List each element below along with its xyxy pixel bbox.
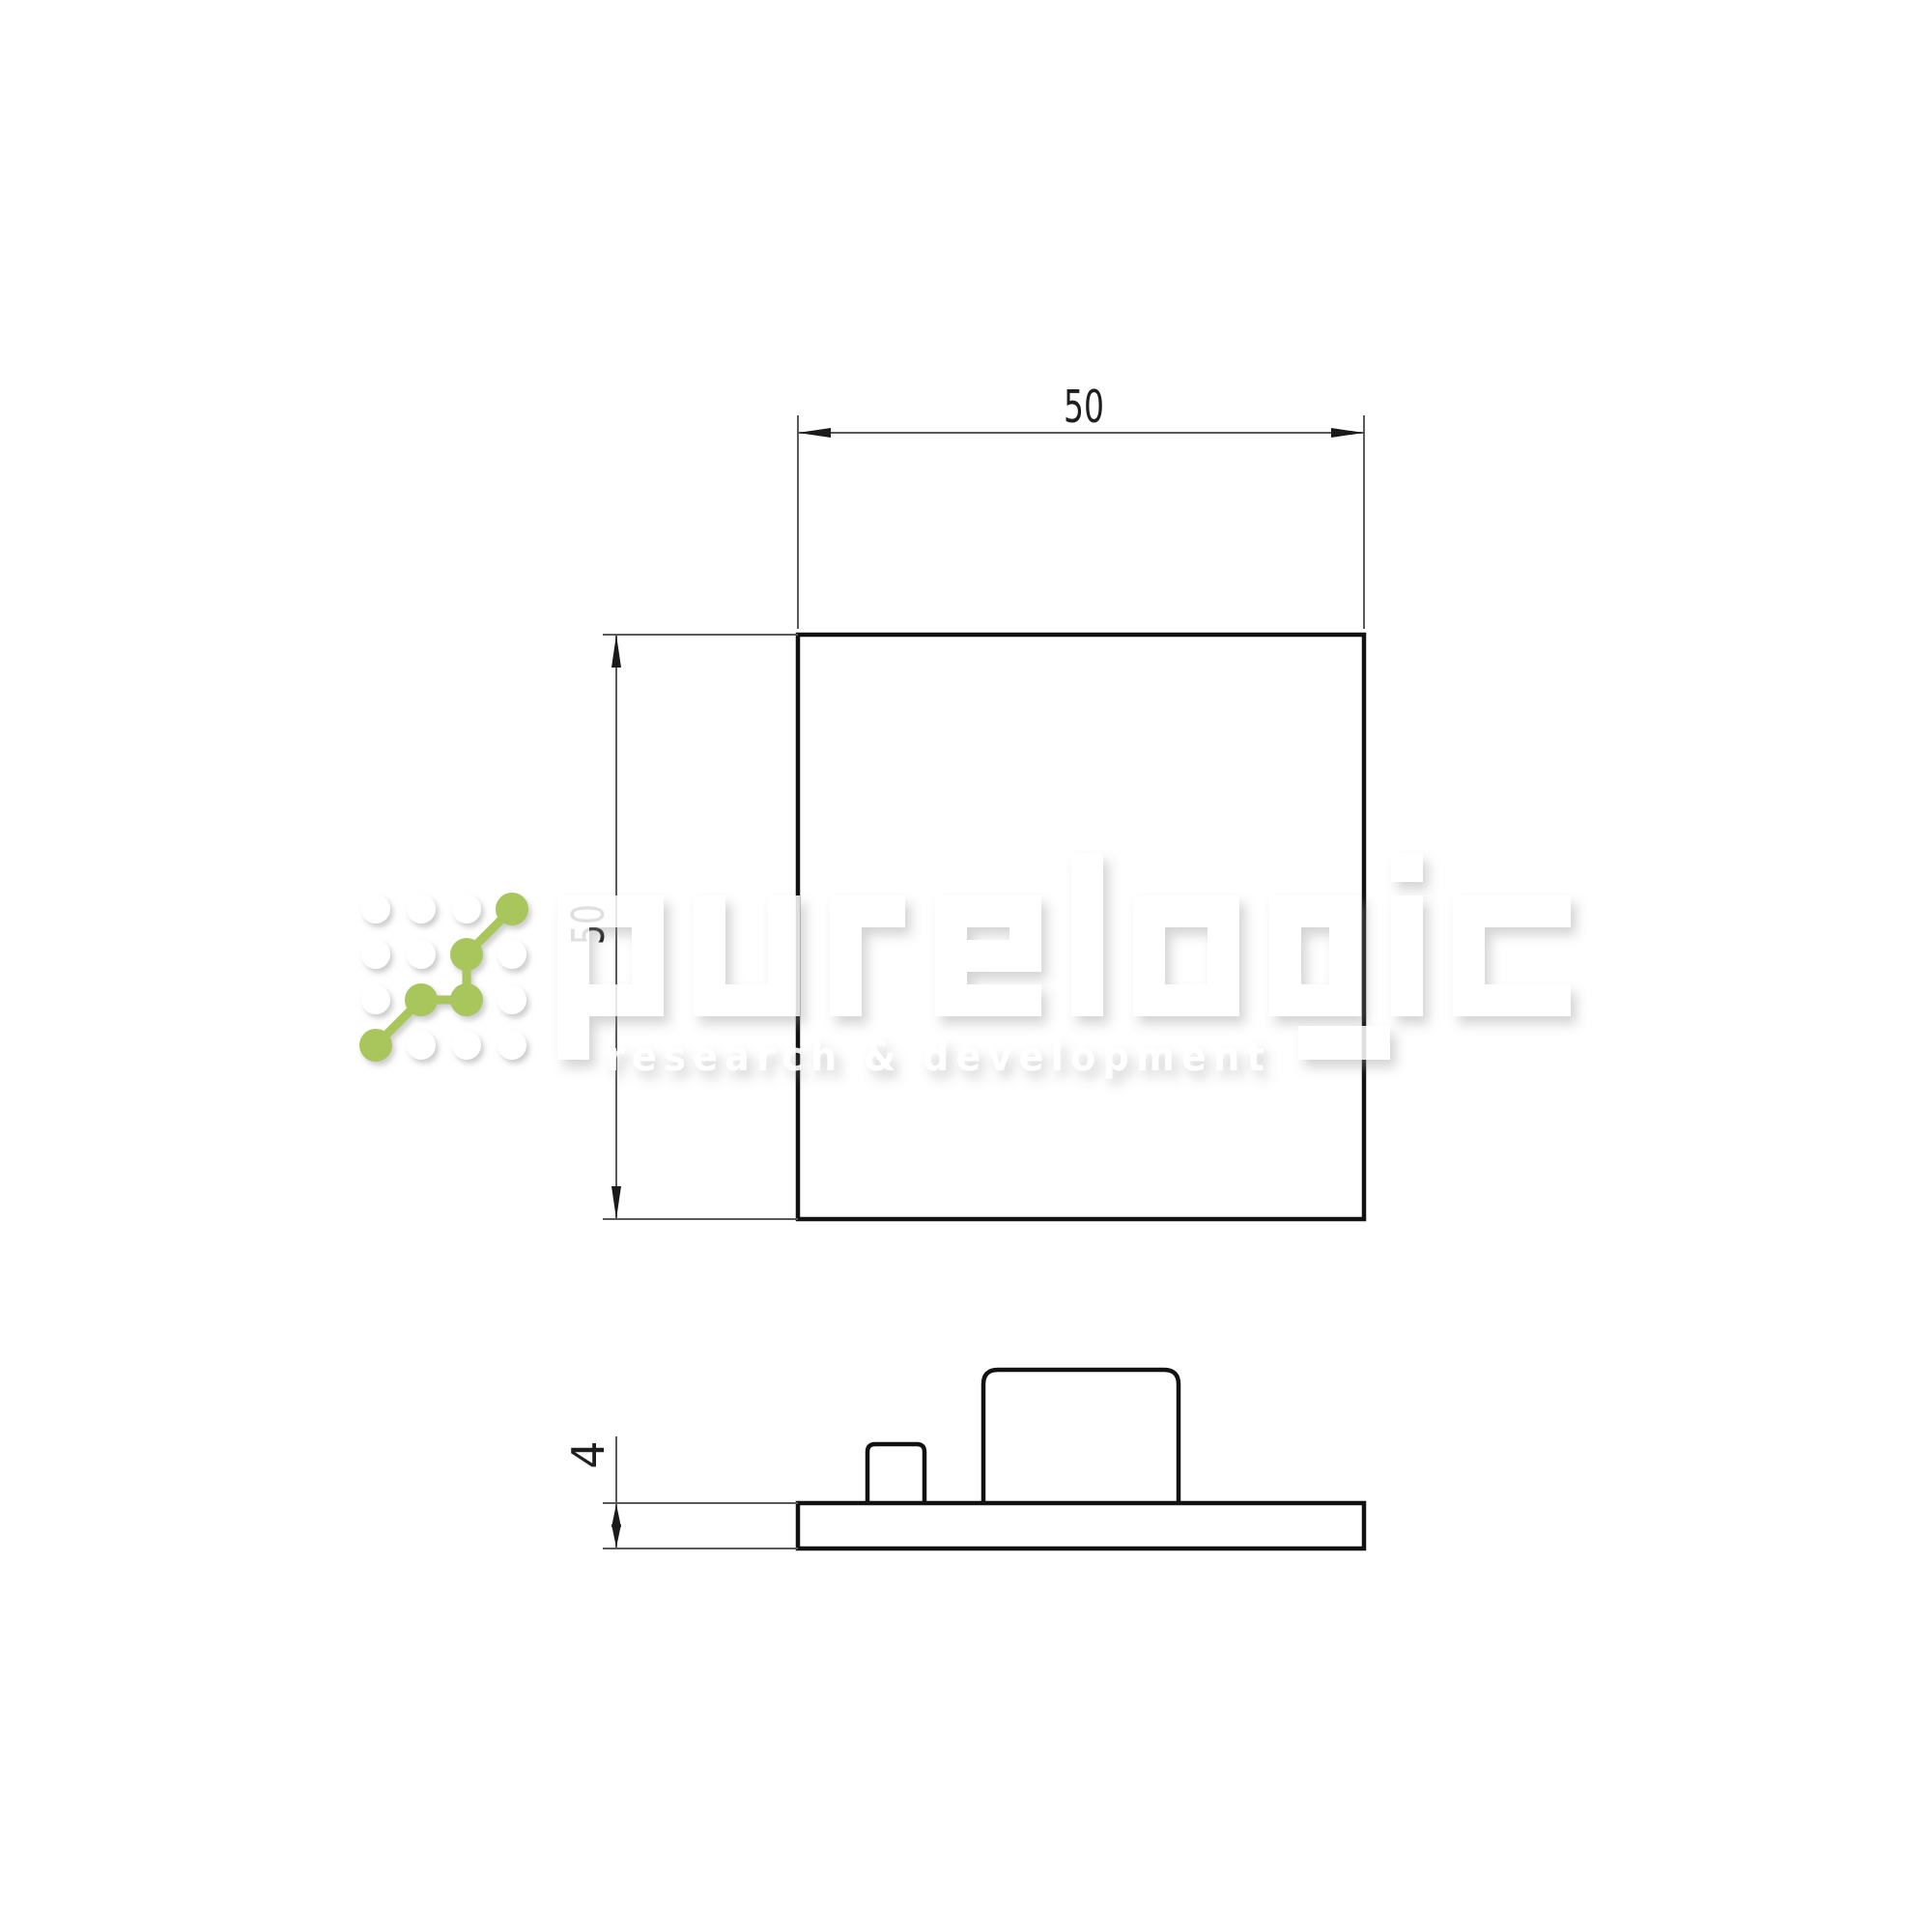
logo-dot-green <box>450 983 483 1016</box>
arrowhead-top <box>611 635 621 668</box>
brand-letter-i <box>1391 853 1423 1016</box>
side-view: 4 <box>562 1370 1364 1548</box>
dimension-value-thickness: 4 <box>562 1440 614 1468</box>
brand-letter-u <box>694 895 800 1016</box>
top-view: 50 50 <box>562 381 1364 1219</box>
logo-dot <box>497 1031 526 1060</box>
plate-outline-side-view <box>798 1503 1364 1548</box>
logo-dot <box>407 1031 436 1060</box>
logo-dot <box>407 895 436 923</box>
large-boss-outline <box>983 1370 1179 1504</box>
brand-letter-r <box>830 895 905 1016</box>
logo-dot <box>361 985 390 1014</box>
arrowhead-down <box>611 1524 621 1548</box>
watermark: research & development <box>359 853 1571 1080</box>
logo-dot-green <box>405 983 438 1016</box>
brand-letter-c <box>1453 895 1571 1016</box>
logo-dot <box>452 895 481 923</box>
logo-dot <box>361 940 390 969</box>
logo-dot-green <box>496 893 528 925</box>
watermark-brand-text <box>557 853 1571 1060</box>
logo-dot-green <box>450 938 483 971</box>
drawing-canvas: 50 50 4 re <box>0 0 1932 1932</box>
arrowhead-left <box>798 428 831 438</box>
logo-dot <box>497 940 526 969</box>
small-boss-outline <box>867 1444 924 1504</box>
dimension-thickness: 4 <box>562 1436 798 1548</box>
brand-letter-e <box>935 895 1041 1016</box>
brand-letter-l <box>1071 853 1103 1016</box>
brand-letter-o <box>1133 895 1239 1016</box>
logo-dot <box>452 1031 481 1060</box>
arrowhead-up <box>611 1504 621 1527</box>
logo-dot <box>497 985 526 1014</box>
dimension-value-top-width: 50 <box>1064 381 1104 433</box>
logo-dot <box>361 895 390 923</box>
logo-polyline <box>376 909 512 1045</box>
logo-dot <box>407 940 436 969</box>
brand-letter-g <box>1269 895 1390 1060</box>
dimension-top-width: 50 <box>798 381 1364 629</box>
arrowhead-right <box>1331 428 1364 438</box>
arrowhead-bottom <box>611 1186 621 1219</box>
watermark-tagline-text: research & development <box>607 1033 1271 1080</box>
logo-dot-green <box>359 1029 392 1062</box>
